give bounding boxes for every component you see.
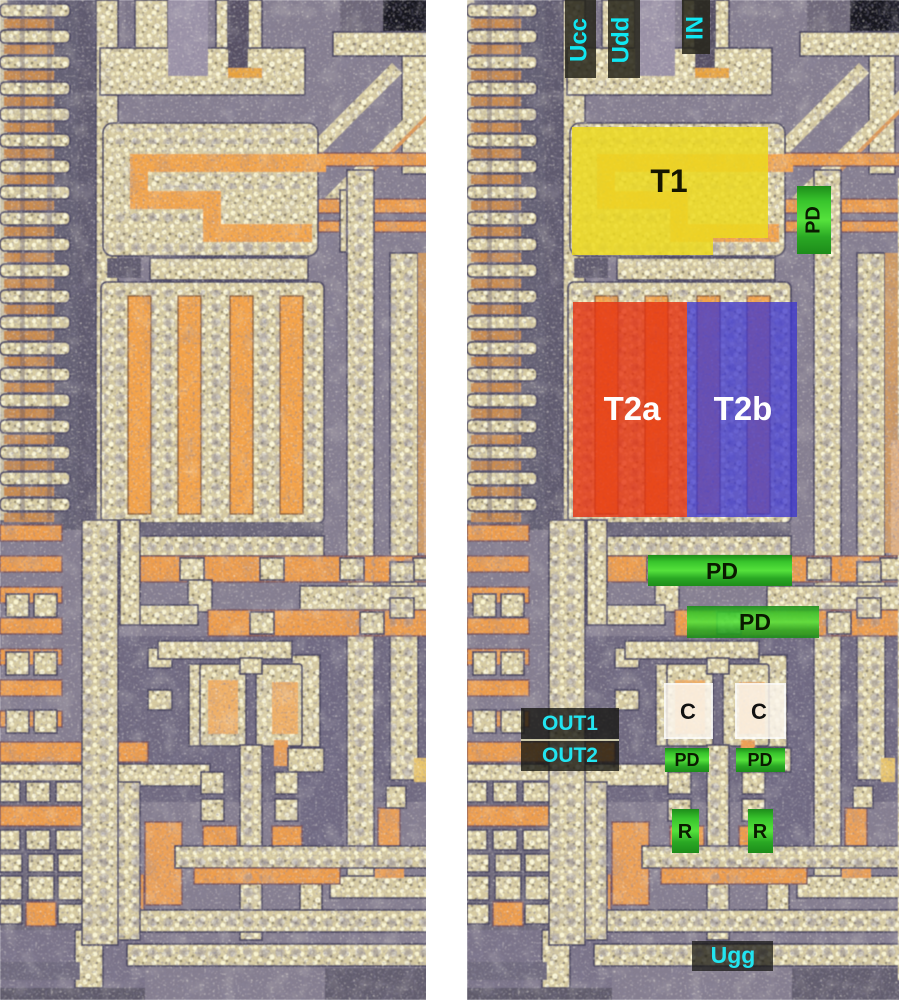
svg-text:T2a: T2a [604,390,662,427]
svg-text:R: R [678,821,693,843]
svg-text:Ucc: Ucc [565,18,592,62]
svg-text:IN: IN [681,16,708,40]
svg-text:OUT2: OUT2 [542,744,598,767]
svg-text:OUT1: OUT1 [542,712,598,735]
svg-text:PD: PD [802,206,824,234]
svg-text:PD: PD [739,609,771,635]
svg-text:PD: PD [706,558,738,584]
svg-text:C: C [751,699,767,724]
svg-text:Ugg: Ugg [711,942,756,968]
svg-text:T1: T1 [650,163,687,199]
svg-text:R: R [753,821,768,843]
svg-text:Udd: Udd [607,17,634,64]
svg-text:PD: PD [674,750,699,770]
svg-text:PD: PD [747,750,772,770]
svg-text:T2b: T2b [714,390,773,427]
svg-text:C: C [680,699,696,724]
